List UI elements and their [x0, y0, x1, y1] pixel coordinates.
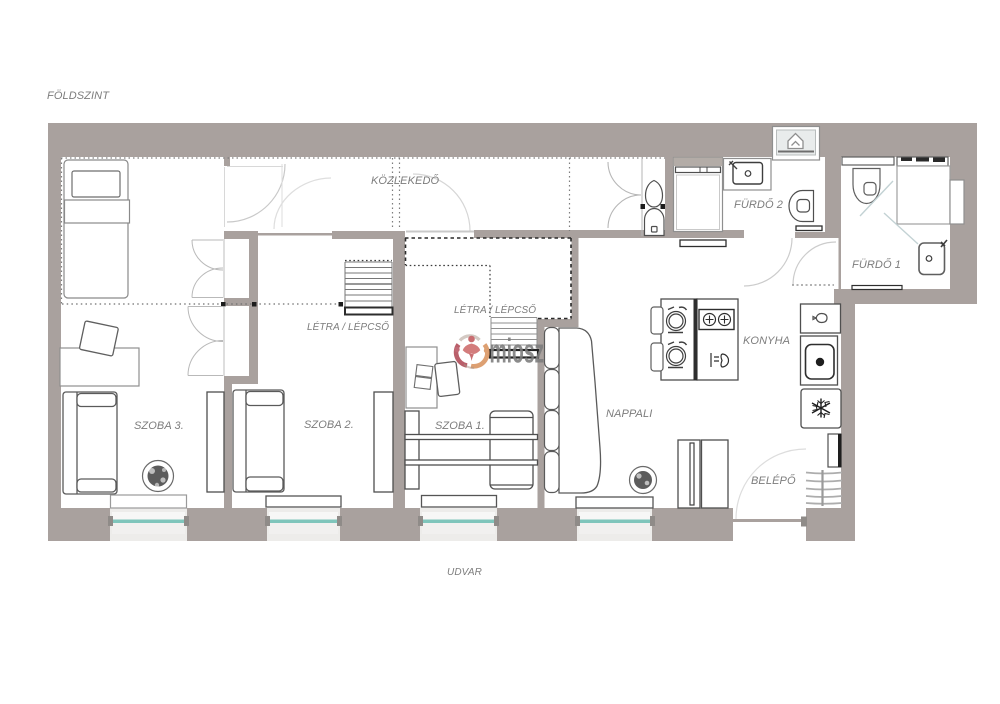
svg-text:SZOBA 3.: SZOBA 3. [134, 420, 184, 432]
svg-text:FÜRDŐ 1: FÜRDŐ 1 [852, 257, 901, 271]
svg-text:FÜRDŐ 2: FÜRDŐ 2 [734, 197, 783, 211]
svg-text:KONYHA: KONYHA [743, 335, 790, 347]
svg-text:LÉTRA / LÉPCSŐ: LÉTRA / LÉPCSŐ [454, 302, 536, 316]
svg-text:KÖZLEKEDŐ: KÖZLEKEDŐ [371, 173, 439, 187]
svg-text:NAPPALI: NAPPALI [606, 408, 652, 420]
svg-text:LÉTRA / LÉPCSŐ: LÉTRA / LÉPCSŐ [307, 319, 389, 333]
svg-text:SZOBA 1.: SZOBA 1. [435, 420, 485, 432]
svg-text:BELÉPŐ: BELÉPŐ [751, 473, 796, 487]
svg-text:miosz: miosz [490, 332, 545, 370]
svg-text:UDVAR: UDVAR [447, 567, 482, 578]
svg-text:SZOBA 2.: SZOBA 2. [304, 419, 354, 431]
svg-text:FÖLDSZINT: FÖLDSZINT [47, 90, 110, 102]
